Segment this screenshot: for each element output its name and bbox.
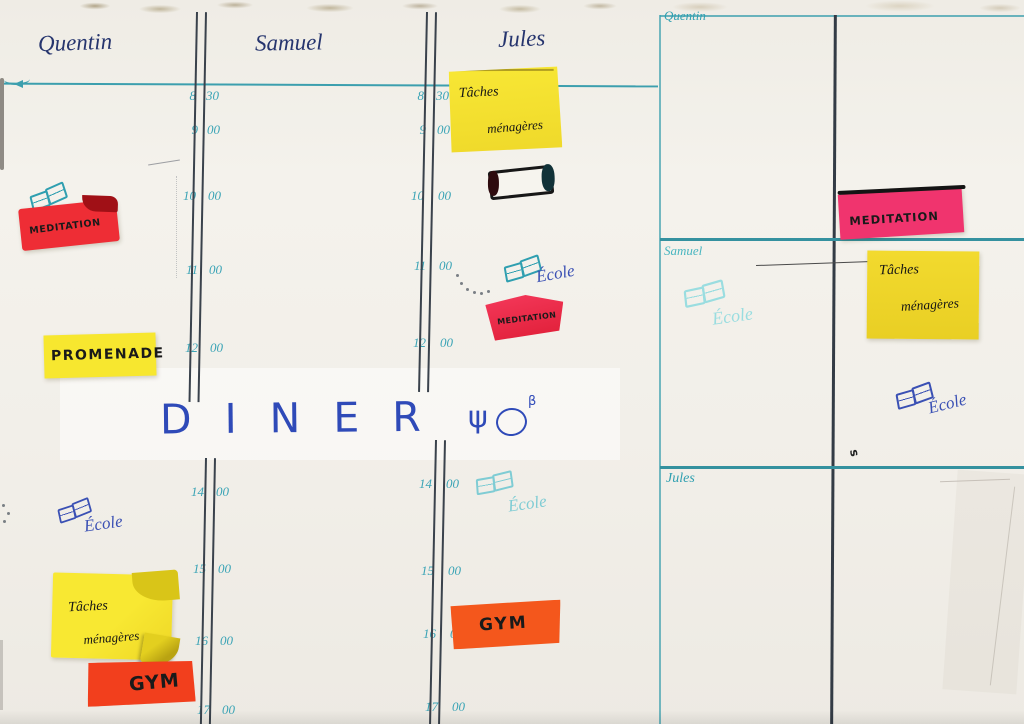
time-minutes: 00 [446,476,459,492]
sticky-note-quentin-tasks: Tâches ménagères [51,572,173,660]
panel-column-divider [830,15,836,724]
sticky-text: GYM [478,613,528,636]
time-minutes: 00 [220,633,233,649]
sticky-edge-shadow [455,69,554,71]
stray-mark: s [847,448,862,457]
fork-doodle-icon: ψ [468,400,488,435]
time-minutes: 00 [207,122,220,138]
paper-sheet-edge-dotted [176,176,177,278]
planner-photo: Quentin Samuel Jules 8 30 9 00 10 00 11 … [0,0,1024,724]
sticky-text: Tâches [879,262,919,279]
time-hour: 10 [396,188,424,204]
pencil-line [756,261,872,266]
school-doodle-icon [683,280,727,311]
sticky-text: MEDITATION [29,217,102,237]
sticky-text: ménagères [487,117,544,137]
paper-sheet-edge [148,160,180,166]
time-minutes: 00 [210,340,223,356]
sticky-text: GYM [128,669,181,695]
time-minutes: 30 [436,88,449,104]
time-minutes: 00 [440,335,453,351]
plate-superscript: β [528,394,536,409]
time-minutes: 00 [209,262,222,278]
time-minutes: 00 [439,258,452,274]
sticky-text: PROMENADE [51,345,165,364]
diner-row: DINER ψ β [152,386,562,458]
time-minutes: 00 [437,122,450,138]
doodle-box [701,279,725,304]
time-hour: 9 [400,122,426,138]
doodle-dark-cap-right [541,164,555,191]
bed-doodle-icon [488,165,555,201]
photo-bottom-shade [0,710,1024,724]
column-divider-1-top [189,12,207,402]
sticky-marker-edge [838,185,966,195]
time-hour: 8 [170,88,196,104]
school-label: École [711,303,755,329]
doodle-dark-cap-left [488,171,499,196]
column-header-samuel: Samuel [255,29,323,56]
time-minutes: 00 [208,188,221,204]
doodle-box [45,181,69,205]
sticky-note-jules-gym: GYM [450,600,561,650]
time-hour: 8 [398,88,424,104]
sticky-text: MEDITATION [849,209,939,228]
time-minutes: 00 [448,563,461,579]
paper-fold-shade [942,470,1024,695]
photo-top-edge-smudge [0,0,1024,17]
sticky-text: ménagères [83,628,140,648]
sticky-note-quentin-gym: GYM [86,659,195,707]
panel-left-border [659,15,661,724]
time-minutes: 00 [216,484,229,500]
panel-section-jules: Jules [666,471,695,487]
school-label: École [83,511,124,536]
time-minutes: 00 [218,561,231,577]
time-hour: 15 [406,563,434,579]
photo-left-edge-shade [0,640,3,710]
time-minutes: 30 [206,88,219,104]
time-hour: 14 [404,476,432,492]
sticky-note-panel-meditation: MEDITATION [838,187,965,239]
column-header-quentin: Quentin [38,29,113,58]
sticky-text: MEDITATION [497,310,557,326]
panel-section-samuel: Samuel [664,243,702,259]
sticky-text: Tâches [68,599,108,617]
diner-label: DINER [160,392,454,443]
sticky-note-jules-meditation: MEDITATION [485,293,565,341]
sticky-text: Tâches [459,84,499,102]
header-rule [4,83,658,88]
sticky-fold [132,569,180,603]
doodle-box [492,470,514,492]
sticky-note-jules-tasks: Tâches ménagères [449,67,563,153]
panel-section-rule-2 [660,466,1024,469]
sticky-fold [82,195,119,212]
sticky-note-quentin-meditation: MEDITATION [18,199,120,251]
time-minutes: 00 [438,188,451,204]
sticky-note-promenade: PROMENADE [43,333,156,379]
school-label: École [507,491,548,516]
sticky-text: ménagères [900,295,959,315]
school-doodle-icon [475,471,514,496]
plate-doodle-icon [494,406,529,438]
time-hour: 14 [176,484,204,500]
column-header-jules: Jules [498,25,546,53]
sticky-note-panel-tasks: Tâches ménagères [867,251,980,340]
photo-left-edge-mark [0,78,4,170]
